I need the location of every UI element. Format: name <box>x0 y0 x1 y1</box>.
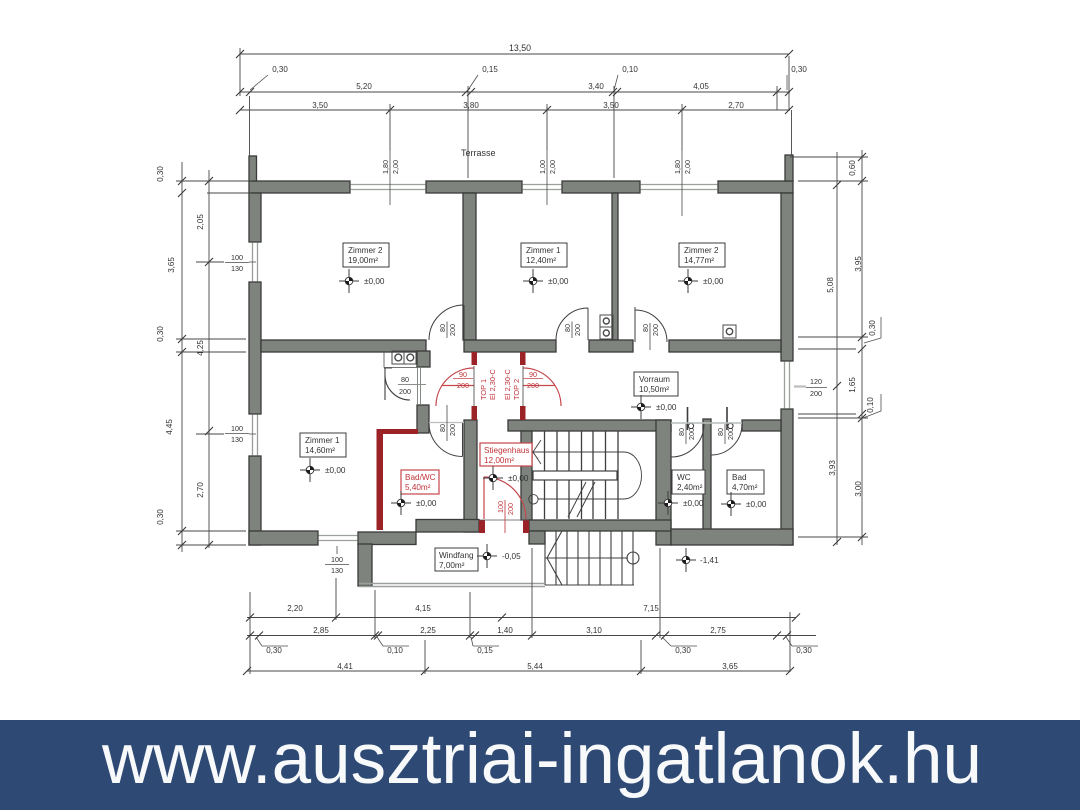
svg-text:3,95: 3,95 <box>854 256 863 272</box>
svg-text:±0,00: ±0,00 <box>703 277 724 286</box>
svg-text:3,65: 3,65 <box>722 662 738 671</box>
svg-text:±0,00: ±0,00 <box>508 474 529 483</box>
svg-text:14,77m²: 14,77m² <box>684 256 714 265</box>
svg-text:1,65: 1,65 <box>848 377 857 393</box>
svg-text:2,00: 2,00 <box>391 160 400 174</box>
svg-text:2,70: 2,70 <box>196 482 205 498</box>
svg-text:3,80: 3,80 <box>463 101 479 110</box>
svg-text:Bad: Bad <box>732 473 747 482</box>
svg-text:2,20: 2,20 <box>287 604 303 613</box>
svg-text:14,60m²: 14,60m² <box>305 446 335 455</box>
svg-text:Zimmer 1: Zimmer 1 <box>305 436 340 445</box>
svg-text:4,25: 4,25 <box>196 340 205 356</box>
svg-text:200: 200 <box>810 389 822 398</box>
svg-text:TOP 2: TOP 2 <box>512 379 521 400</box>
svg-text:www.ausztriai-ingatlanok.hu: www.ausztriai-ingatlanok.hu <box>101 720 982 799</box>
svg-text:5,08: 5,08 <box>826 277 835 293</box>
svg-text:0,30: 0,30 <box>156 166 165 182</box>
svg-text:200: 200 <box>457 381 469 390</box>
svg-text:10,50m²: 10,50m² <box>639 385 669 394</box>
svg-text:0,60: 0,60 <box>848 160 857 176</box>
svg-text:2,70: 2,70 <box>728 101 744 110</box>
svg-text:TOP 1: TOP 1 <box>479 379 488 400</box>
svg-text:12,00m²: 12,00m² <box>484 456 514 465</box>
svg-text:130: 130 <box>331 566 343 575</box>
svg-text:80: 80 <box>641 324 650 332</box>
svg-text:3,40: 3,40 <box>588 82 604 91</box>
svg-text:El 2,30-C: El 2,30-C <box>488 369 497 400</box>
svg-text:2,00: 2,00 <box>548 160 557 174</box>
svg-text:200: 200 <box>726 428 735 440</box>
svg-text:100: 100 <box>231 424 243 433</box>
svg-text:±0,00: ±0,00 <box>548 277 569 286</box>
svg-text:3,10: 3,10 <box>586 626 602 635</box>
svg-text:90: 90 <box>459 370 467 379</box>
svg-text:3,50: 3,50 <box>603 101 619 110</box>
svg-text:1,80: 1,80 <box>381 160 390 174</box>
svg-text:200: 200 <box>506 503 515 515</box>
svg-text:13,50: 13,50 <box>509 43 531 53</box>
svg-text:7,15: 7,15 <box>643 604 659 613</box>
svg-text:80: 80 <box>563 324 572 332</box>
svg-text:5,44: 5,44 <box>527 662 543 671</box>
svg-text:0,30: 0,30 <box>791 65 807 74</box>
svg-text:19,00m²: 19,00m² <box>348 256 378 265</box>
svg-text:4,05: 4,05 <box>693 82 709 91</box>
svg-text:0,15: 0,15 <box>477 646 493 655</box>
svg-text:3,50: 3,50 <box>312 101 328 110</box>
svg-text:4,45: 4,45 <box>165 419 174 435</box>
svg-text:90: 90 <box>529 370 537 379</box>
svg-text:Stiegenhaus: Stiegenhaus <box>484 446 530 455</box>
svg-text:0,30: 0,30 <box>156 326 165 342</box>
svg-text:WC: WC <box>677 473 691 482</box>
svg-text:Bad/WC: Bad/WC <box>405 473 436 482</box>
svg-text:4,41: 4,41 <box>337 662 353 671</box>
svg-text:200: 200 <box>687 428 696 440</box>
svg-text:2,00: 2,00 <box>683 160 692 174</box>
svg-text:80: 80 <box>401 375 409 384</box>
svg-text:2,40m²: 2,40m² <box>677 483 703 492</box>
svg-text:80: 80 <box>438 324 447 332</box>
svg-text:2,25: 2,25 <box>420 626 436 635</box>
svg-text:100: 100 <box>496 501 505 513</box>
svg-text:120: 120 <box>810 377 822 386</box>
svg-text:0,30: 0,30 <box>272 65 288 74</box>
svg-text:2,05: 2,05 <box>196 214 205 230</box>
svg-text:130: 130 <box>231 264 243 273</box>
svg-text:200: 200 <box>651 324 660 336</box>
svg-text:±0,00: ±0,00 <box>325 466 346 475</box>
svg-text:1,00: 1,00 <box>538 160 547 174</box>
svg-text:100: 100 <box>331 555 343 564</box>
svg-text:200: 200 <box>573 324 582 336</box>
svg-text:200: 200 <box>448 424 457 436</box>
svg-text:-1,41: -1,41 <box>700 556 719 565</box>
svg-text:2,85: 2,85 <box>313 626 329 635</box>
svg-text:0,30: 0,30 <box>796 646 812 655</box>
svg-text:Zimmer 2: Zimmer 2 <box>684 246 719 255</box>
svg-text:Zimmer 2: Zimmer 2 <box>348 246 383 255</box>
svg-text:0,30: 0,30 <box>156 509 165 525</box>
svg-text:80: 80 <box>716 428 725 436</box>
svg-text:0,10: 0,10 <box>387 646 403 655</box>
svg-text:200: 200 <box>448 324 457 336</box>
svg-text:200: 200 <box>527 381 539 390</box>
svg-text:1,80: 1,80 <box>673 160 682 174</box>
svg-text:0,30: 0,30 <box>266 646 282 655</box>
svg-text:12,40m²: 12,40m² <box>526 256 556 265</box>
svg-text:80: 80 <box>677 428 686 436</box>
svg-text:Vorraum: Vorraum <box>639 375 670 384</box>
svg-text:Windfang: Windfang <box>439 551 474 560</box>
svg-text:-0,05: -0,05 <box>502 552 521 561</box>
svg-text:3,00: 3,00 <box>854 481 863 497</box>
svg-text:3,65: 3,65 <box>167 257 176 273</box>
svg-text:5,40m²: 5,40m² <box>405 483 431 492</box>
svg-text:0,30: 0,30 <box>868 320 877 336</box>
svg-text:±0,00: ±0,00 <box>746 500 767 509</box>
svg-text:0,15: 0,15 <box>482 65 498 74</box>
svg-text:3,93: 3,93 <box>828 460 837 476</box>
svg-text:±0,00: ±0,00 <box>364 277 385 286</box>
svg-text:4,15: 4,15 <box>415 604 431 613</box>
svg-text:80: 80 <box>438 424 447 432</box>
svg-text:El 2,30-C: El 2,30-C <box>503 369 512 400</box>
svg-text:±0,00: ±0,00 <box>683 499 704 508</box>
svg-text:130: 130 <box>231 435 243 444</box>
svg-text:±0,00: ±0,00 <box>656 403 677 412</box>
svg-text:±0,00: ±0,00 <box>416 499 437 508</box>
svg-text:0,10: 0,10 <box>622 65 638 74</box>
svg-text:200: 200 <box>399 387 411 396</box>
svg-text:1,40: 1,40 <box>497 626 513 635</box>
svg-text:100: 100 <box>231 253 243 262</box>
svg-text:2,75: 2,75 <box>710 626 726 635</box>
svg-text:0,30: 0,30 <box>675 646 691 655</box>
svg-text:Terrasse: Terrasse <box>461 148 496 158</box>
svg-text:0,10: 0,10 <box>866 397 875 413</box>
svg-text:4,70m²: 4,70m² <box>732 483 758 492</box>
svg-text:Zimmer 1: Zimmer 1 <box>526 246 561 255</box>
svg-text:7,00m²: 7,00m² <box>439 561 465 570</box>
svg-text:5,20: 5,20 <box>356 82 372 91</box>
